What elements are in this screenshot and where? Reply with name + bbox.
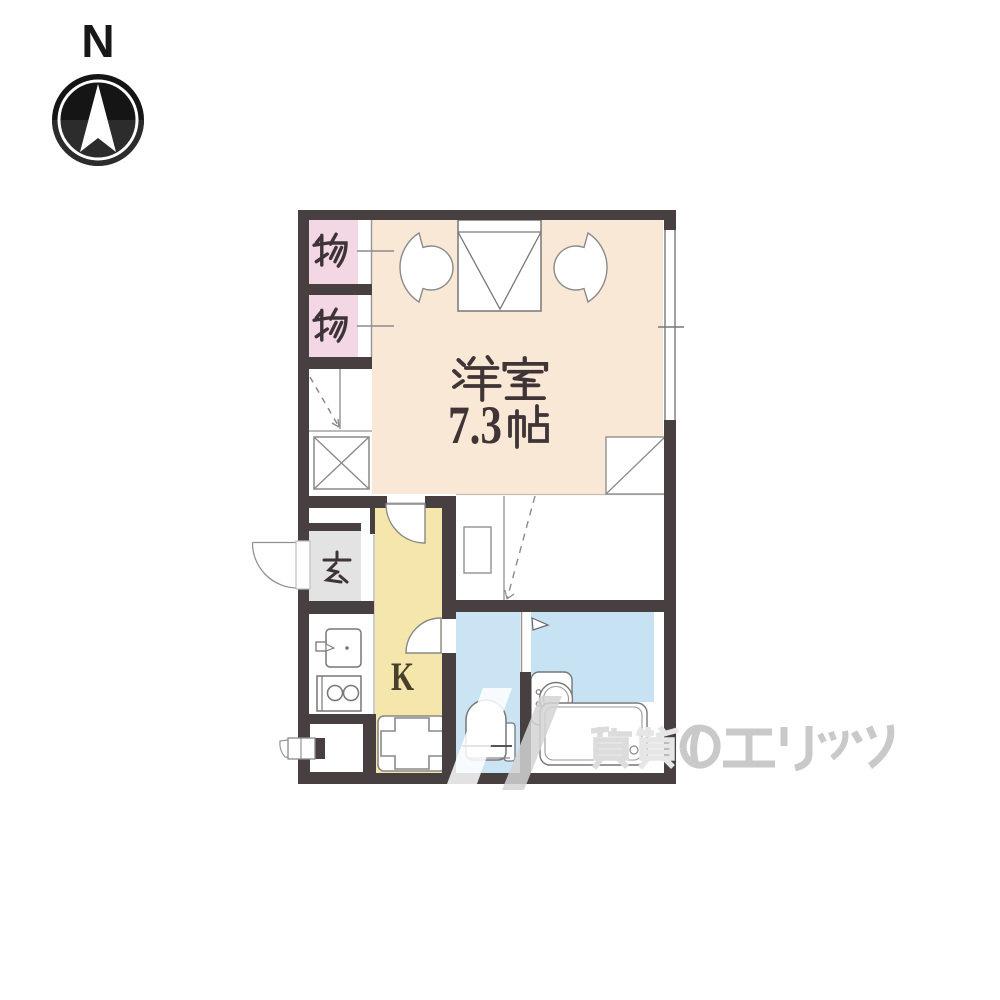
svg-text:N: N xyxy=(81,15,114,67)
svg-text:7.3: 7.3 xyxy=(448,394,502,455)
svg-text:K: K xyxy=(391,655,415,699)
